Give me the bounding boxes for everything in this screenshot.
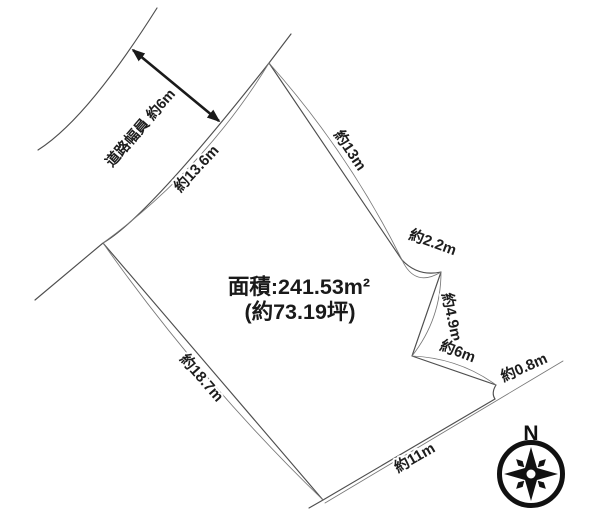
plot-svg: 道路幅員 約6m 約13.6m 約13m 約2.2m 約4.9m 約6m 約0.…: [0, 0, 600, 511]
dimension-label-notch-d: 約0.8m: [498, 349, 550, 385]
area-label-line1: 面積:241.53m²: [228, 275, 370, 299]
witness-2-2m-line: [402, 260, 441, 278]
edge-2-2m-line: [402, 260, 441, 273]
dimension-label-notch-b: 約4.9m: [438, 291, 466, 343]
edge-13m-line: [269, 63, 402, 260]
dimension-label-frontage: 約13.6m: [170, 141, 222, 195]
land-plot-diagram: 道路幅員 約6m 約13.6m 約13m 約2.2m 約4.9m 約6m 約0.…: [0, 0, 600, 511]
corner-extension-line: [309, 500, 323, 508]
edge-6m-line: [412, 356, 496, 385]
edge-11m-line: [323, 399, 495, 500]
area-label-line2: (約73.19坪): [244, 299, 355, 324]
dimension-label-northeast: 約13m: [330, 127, 370, 174]
dimension-label-notch-a: 約2.2m: [407, 225, 459, 259]
edge-0-8m-line: [493, 385, 496, 399]
compass-rose: [500, 443, 563, 506]
dimension-label-south: 約11m: [391, 439, 438, 477]
road-width-label: 道路幅員 約6m: [101, 85, 179, 170]
edge-4-9m-line: [412, 272, 441, 356]
compass-center-dot: [527, 470, 536, 479]
